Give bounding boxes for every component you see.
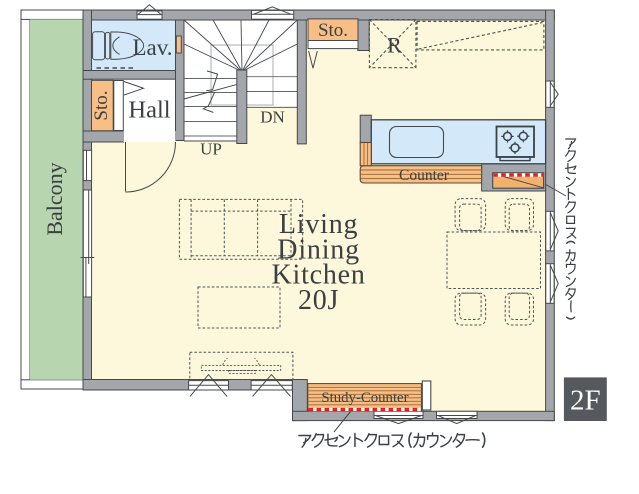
svg-text:Sto.: Sto. <box>91 90 112 120</box>
svg-text:Sto.: Sto. <box>318 20 348 41</box>
svg-text:UP: UP <box>200 140 222 159</box>
svg-text:Counter: Counter <box>399 167 450 184</box>
svg-text:Lav.: Lav. <box>132 35 172 60</box>
svg-text:Balcony: Balcony <box>42 162 67 235</box>
svg-text:20J: 20J <box>298 285 339 316</box>
svg-text:2F: 2F <box>570 385 601 417</box>
svg-text:DN: DN <box>260 108 285 127</box>
svg-text:R: R <box>387 33 402 58</box>
svg-text:Study-Counter: Study-Counter <box>321 390 408 406</box>
svg-text:Hall: Hall <box>128 97 170 124</box>
